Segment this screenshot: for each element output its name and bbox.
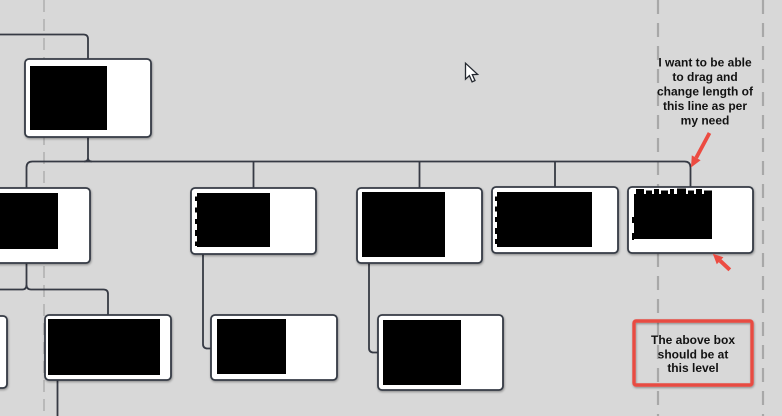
svg-text:this line as per: this line as per <box>663 99 747 113</box>
svg-text:my need: my need <box>681 114 730 128</box>
svg-text:should be at: should be at <box>658 348 729 362</box>
svg-text:I want to be able: I want to be able <box>658 56 752 70</box>
svg-text:The above box: The above box <box>651 333 735 347</box>
svg-text:change length of: change length of <box>657 85 754 99</box>
svg-text:this level: this level <box>667 361 718 375</box>
svg-text:to drag and: to drag and <box>672 70 737 84</box>
